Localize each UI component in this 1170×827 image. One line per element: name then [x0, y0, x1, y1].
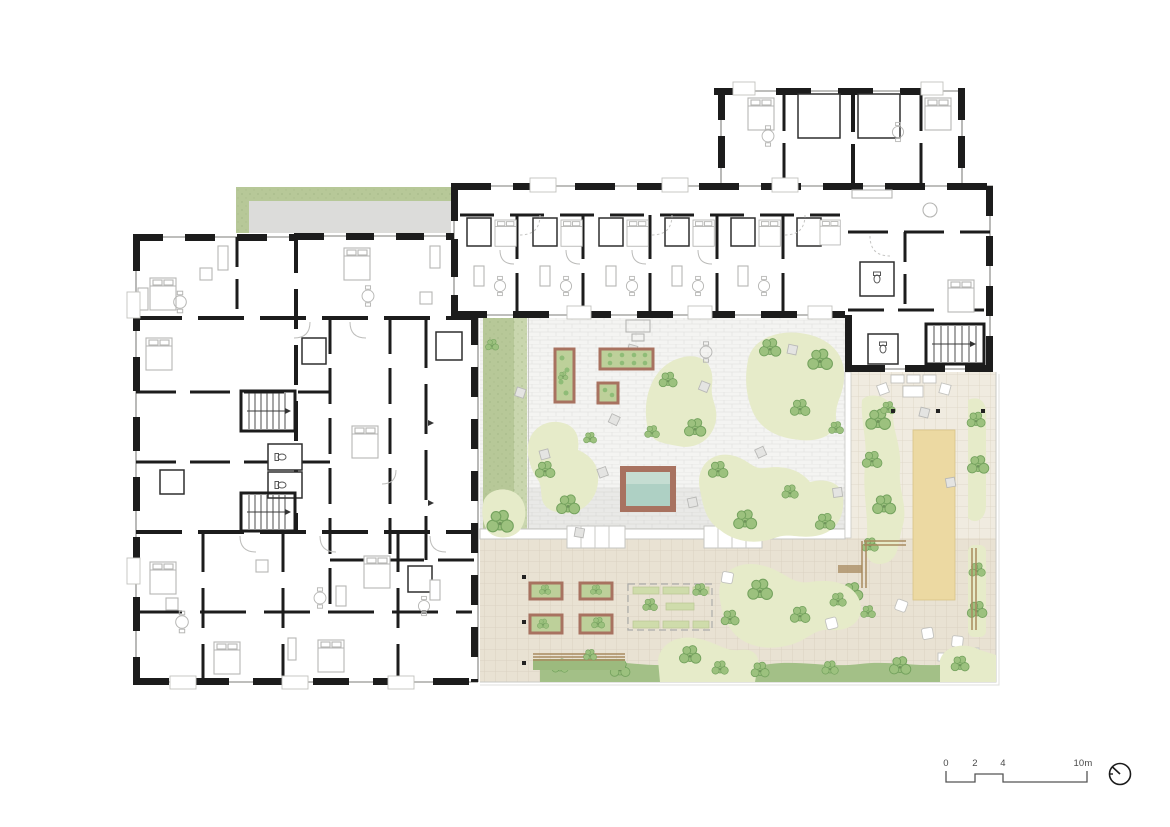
floor-plan-sheet: 0 2 4 10m	[0, 0, 1170, 827]
roof-terrace-topleft	[236, 187, 451, 233]
sand-lawn	[913, 430, 955, 600]
water-basin	[620, 466, 676, 512]
scale-bar-line	[938, 768, 1108, 788]
north-arrow-icon	[1106, 760, 1134, 788]
scale-bar: 0 2 4 10m	[938, 758, 1108, 790]
floor-plan-drawing	[0, 0, 1170, 827]
